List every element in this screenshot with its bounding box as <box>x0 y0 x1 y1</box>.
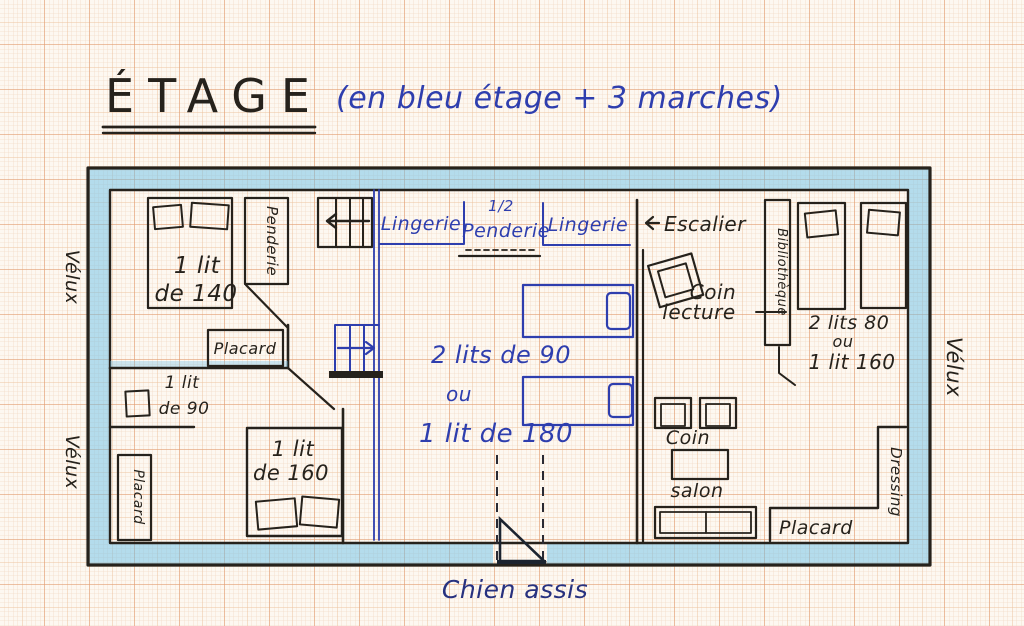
lingerie-right-label: Lingerie <box>548 214 628 236</box>
escalier-label: Escalier <box>664 212 747 236</box>
bed-160-label-1: 1 lit <box>272 437 315 461</box>
middle-beds-label-3: 1 lit de 180 <box>419 419 573 449</box>
right-beds-label-2: ou <box>833 332 854 351</box>
placard-label: Placard <box>214 339 277 358</box>
velux-left-top-label: Vélux <box>61 250 83 305</box>
half-penderie-label-1: 1/2 <box>488 197 514 215</box>
dormer-label: Chien assis <box>442 575 588 604</box>
reading-label-2: lecture <box>662 300 735 324</box>
right-beds-label-1: 2 lits 80 <box>809 312 890 334</box>
salon-label-2: salon <box>671 480 724 502</box>
dressing-label: Dressing <box>887 447 905 517</box>
bed-140-label-2: de 140 <box>155 281 238 307</box>
bed-140-label-1: 1 lit <box>174 253 221 279</box>
title-annotation: (en bleu étage + 3 marches) <box>336 81 783 116</box>
floor-plan-sketch: ÉTAGE (en bleu étage + 3 marches) Vélux … <box>0 0 1024 626</box>
velux-left-bottom-label: Vélux <box>61 435 83 490</box>
right-beds-label-3: 1 lit 160 <box>808 350 895 374</box>
penderie-label: Penderie <box>263 206 281 276</box>
middle-beds-label-1: 2 lits de 90 <box>431 341 571 369</box>
bed-90-label-1: 1 lit <box>165 373 201 393</box>
placard-strip-label: Placard <box>130 469 146 524</box>
bed-160-label-2: de 160 <box>253 461 329 485</box>
velux-right-label: Vélux <box>942 337 966 397</box>
half-penderie-label-2: Penderie <box>462 220 550 242</box>
bed-90-label-2: de 90 <box>159 399 210 419</box>
placard-br-label: Placard <box>779 517 853 539</box>
page-title: ÉTAGE <box>105 69 324 123</box>
salon-label-1: Coin <box>666 427 710 449</box>
middle-beds-label-2: ou <box>446 382 472 406</box>
lingerie-left-label: Lingerie <box>381 213 461 235</box>
bookcase-label: Bibliothèque <box>774 228 789 316</box>
blue-stair-landing-bar <box>329 371 383 378</box>
